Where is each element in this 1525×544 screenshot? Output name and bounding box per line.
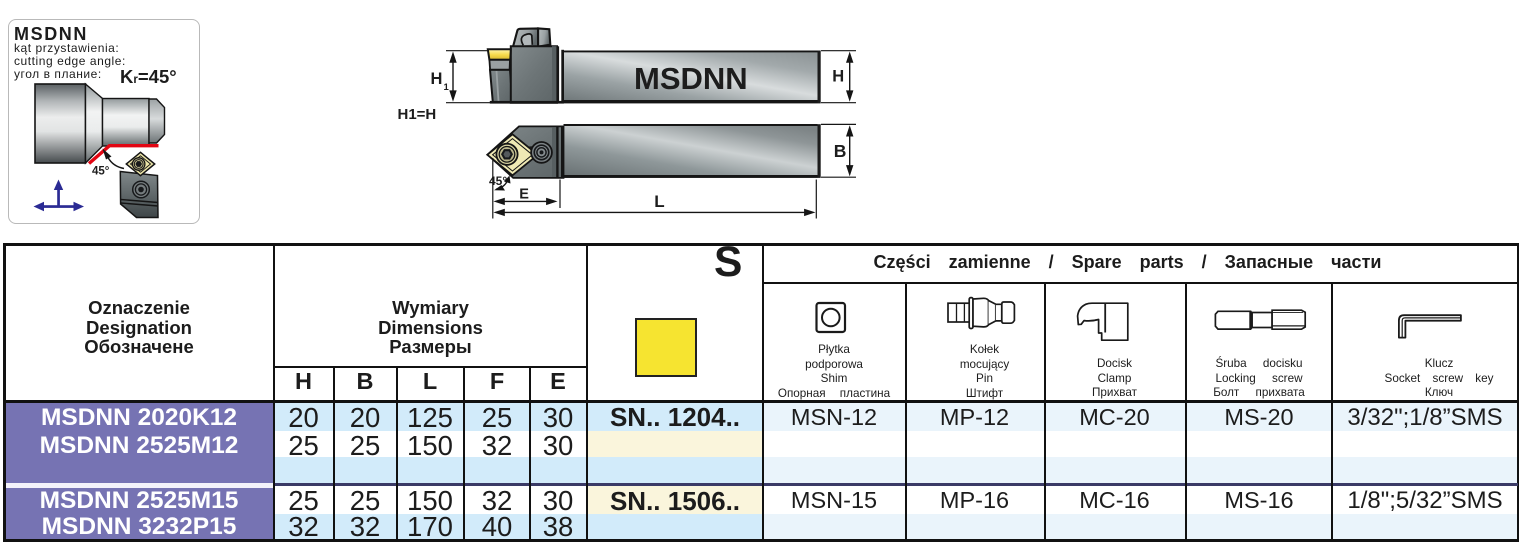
svg-text:H1=H: H1=H bbox=[398, 106, 437, 123]
svg-text:L: L bbox=[654, 192, 664, 211]
svg-text:B: B bbox=[834, 141, 847, 161]
svg-text:1: 1 bbox=[444, 82, 450, 93]
svg-text:MSDNN: MSDNN bbox=[634, 61, 748, 96]
svg-text:E: E bbox=[519, 187, 529, 203]
svg-text:H: H bbox=[431, 70, 443, 88]
svg-text:H: H bbox=[832, 67, 844, 85]
svg-text:45°: 45° bbox=[92, 166, 110, 178]
